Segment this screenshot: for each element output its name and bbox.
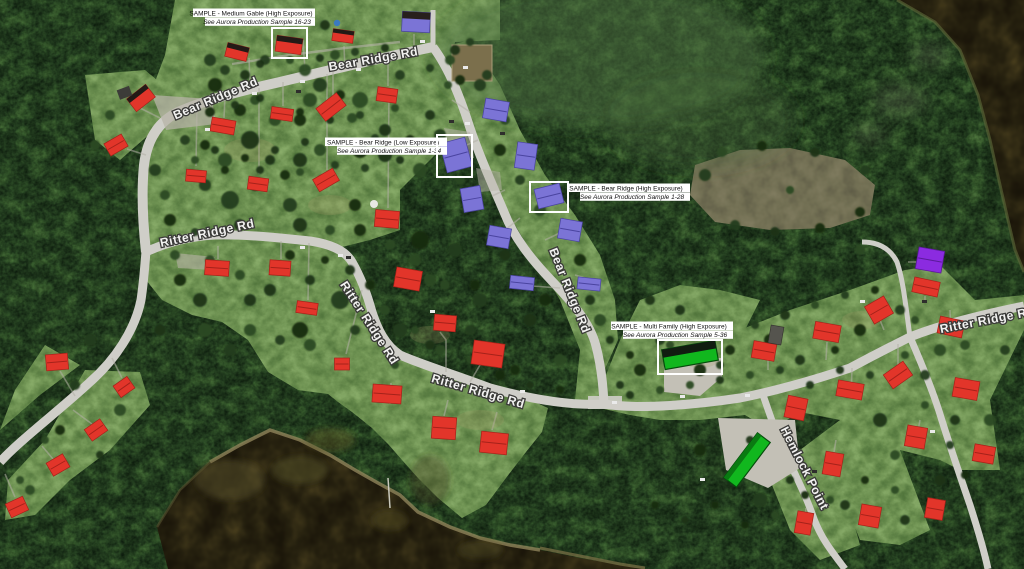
svg-text:SAMPLE - Medium Gable (High Ex: SAMPLE - Medium Gable (High Exposure) bbox=[189, 11, 312, 18]
svg-text:SAMPLE - Multi Family (High Ex: SAMPLE - Multi Family (High Exposure) bbox=[611, 324, 727, 331]
svg-text:See Aurora Production Sample 1: See Aurora Production Sample 1-34 bbox=[337, 148, 442, 155]
svg-text:SAMPLE - Bear Ridge (Low Expos: SAMPLE - Bear Ridge (Low Exposure) bbox=[327, 140, 439, 147]
svg-text:SAMPLE - Bear Ridge (High Expo: SAMPLE - Bear Ridge (High Exposure) bbox=[569, 186, 682, 193]
svg-text:See Aurora Production Sample 5: See Aurora Production Sample 5-36 bbox=[623, 332, 728, 339]
svg-text:See Aurora Production Sample 1: See Aurora Production Sample 1-28 bbox=[580, 194, 685, 201]
svg-text:See Aurora Production Sample 1: See Aurora Production Sample 16-23 bbox=[203, 19, 311, 26]
